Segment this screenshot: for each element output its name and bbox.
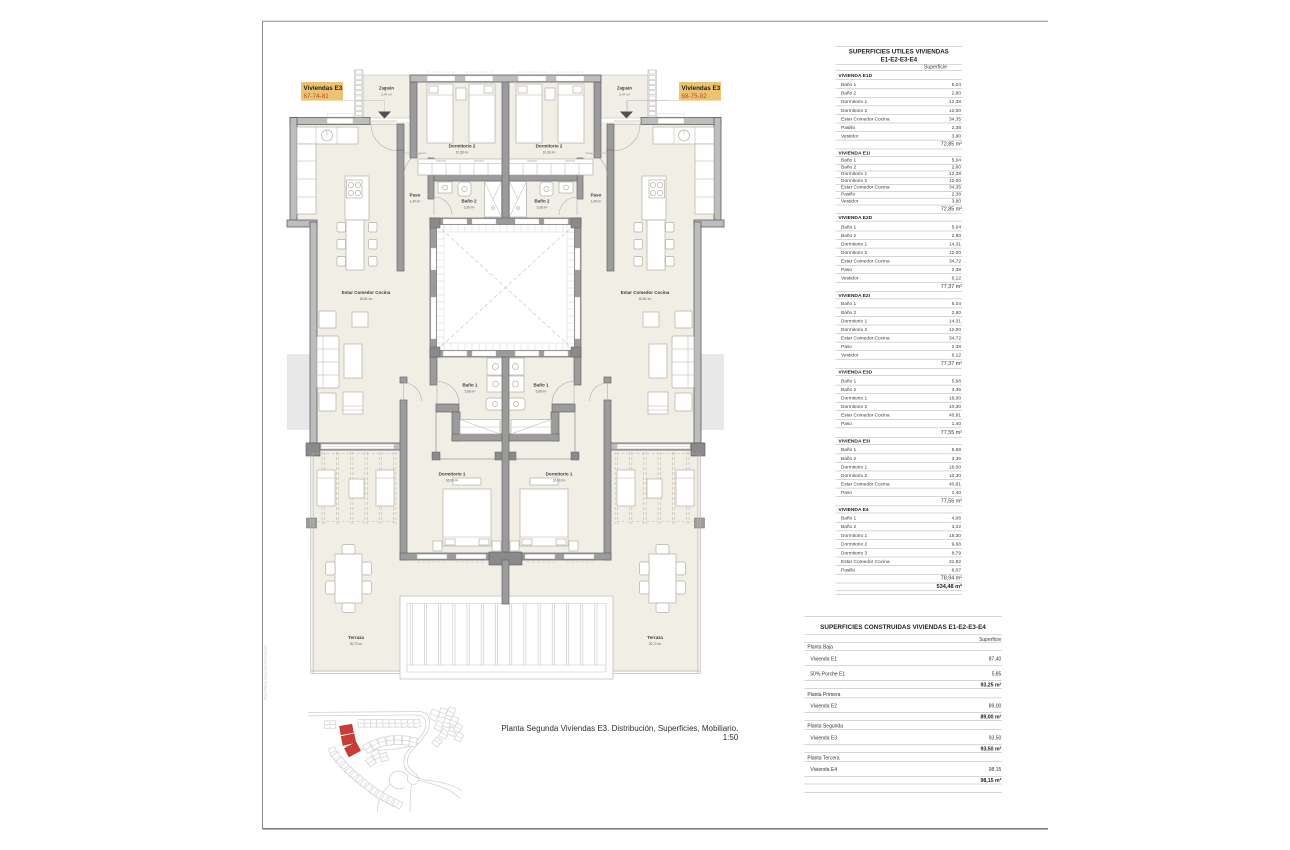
svg-text:Baño 1: Baño 1 [841, 447, 857, 453]
svg-text:2,38: 2,38 [952, 344, 962, 350]
svg-text:Planta Baja: Planta Baja [807, 644, 833, 650]
svg-text:Terraza: Terraza [647, 635, 663, 640]
svg-text:40,81: 40,81 [949, 481, 961, 487]
svg-text:1:50: 1:50 [723, 733, 739, 742]
svg-text:2,47 m²: 2,47 m² [381, 93, 392, 97]
svg-text:16,00 m²: 16,00 m² [446, 479, 459, 483]
svg-text:VIVIENDA E1D: VIVIENDA E1D [838, 73, 872, 79]
svg-text:Baño 1: Baño 1 [841, 301, 857, 307]
svg-text:Estar Comedor Cocina: Estar Comedor Cocina [621, 290, 670, 295]
svg-text:3,22: 3,22 [952, 524, 962, 530]
svg-text:Dormitorio 1: Dormitorio 1 [841, 171, 867, 177]
svg-text:VIVIENDA E2D: VIVIENDA E2D [838, 215, 872, 221]
svg-text:2,80: 2,80 [952, 233, 962, 239]
svg-text:93,25 m²: 93,25 m² [981, 682, 1002, 688]
svg-text:40,81: 40,81 [949, 413, 961, 419]
svg-text:Baño 1: Baño 1 [841, 378, 857, 384]
svg-text:Baño 2: Baño 2 [841, 456, 857, 462]
svg-text:3,36 m²: 3,36 m² [464, 206, 475, 210]
svg-text:Paso: Paso [410, 193, 421, 198]
svg-text:93,50 m²: 93,50 m² [981, 746, 1002, 752]
svg-text:SUPERFICIES CONSTRUIDAS VIVIEN: SUPERFICIES CONSTRUIDAS VIVIENDAS E1-E2-… [820, 624, 986, 631]
svg-text:Baño 1: Baño 1 [841, 82, 857, 88]
svg-text:Baño 2: Baño 2 [841, 387, 857, 393]
svg-text:89,00: 89,00 [989, 703, 1002, 709]
svg-text:72,85 m²: 72,85 m² [941, 142, 962, 148]
svg-text:4,06: 4,06 [952, 516, 962, 522]
svg-text:10,30: 10,30 [949, 404, 961, 410]
svg-text:Planta Tercera: Planta Tercera [807, 755, 839, 761]
svg-text:Plano Planta Segunda Viviendas: Plano Planta Segunda Viviendas E3 [264, 645, 268, 700]
svg-text:1,40: 1,40 [952, 421, 962, 427]
svg-text:Dormitorio 2: Dormitorio 2 [536, 144, 563, 149]
svg-text:Dormitorio 2: Dormitorio 2 [841, 250, 867, 256]
svg-text:87,40: 87,40 [989, 657, 1002, 663]
svg-text:14,31: 14,31 [949, 318, 961, 324]
svg-text:Baño 1: Baño 1 [533, 383, 549, 388]
svg-text:34,35: 34,35 [949, 116, 961, 122]
svg-text:E1-E2-E3-E4: E1-E2-E3-E4 [881, 56, 918, 63]
svg-text:14,31: 14,31 [949, 241, 961, 247]
svg-text:6,12: 6,12 [952, 276, 962, 282]
svg-text:2,47 m²: 2,47 m² [619, 93, 630, 97]
svg-text:Terraza: Terraza [348, 635, 364, 640]
svg-text:5,04: 5,04 [952, 224, 962, 230]
svg-text:Baño 2: Baño 2 [841, 91, 857, 97]
svg-text:72,85 m²: 72,85 m² [941, 207, 962, 213]
svg-text:Vivienda E2: Vivienda E2 [810, 703, 837, 709]
svg-text:5,85: 5,85 [992, 672, 1002, 678]
svg-text:Dormitorio 1: Dormitorio 1 [546, 472, 573, 477]
svg-text:2,38: 2,38 [952, 125, 962, 131]
svg-text:Baño 2: Baño 2 [841, 524, 857, 530]
svg-text:Vestidor: Vestidor [841, 133, 859, 139]
svg-text:SUPERFICIES UTILES VIVIENDAS: SUPERFICIES UTILES VIVIENDAS [849, 48, 949, 55]
svg-text:3,90: 3,90 [952, 133, 962, 139]
svg-text:Pasillo: Pasillo [841, 125, 855, 131]
svg-text:34,35: 34,35 [949, 185, 961, 191]
svg-text:VIVIENDA E4: VIVIENDA E4 [838, 507, 869, 513]
svg-text:Paso: Paso [841, 421, 852, 427]
svg-text:2,80: 2,80 [952, 310, 962, 316]
svg-text:5,68: 5,68 [952, 447, 962, 453]
svg-text:Estar Comedor Cocina: Estar Comedor Cocina [841, 559, 890, 565]
svg-text:5,04: 5,04 [952, 158, 962, 164]
svg-text:Dormitorio 2: Dormitorio 2 [841, 473, 867, 479]
svg-text:77,55 m²: 77,55 m² [941, 430, 962, 436]
svg-text:Paso: Paso [841, 344, 852, 350]
svg-text:10,30: 10,30 [949, 473, 961, 479]
svg-text:12,00: 12,00 [949, 250, 961, 256]
svg-text:VIVIENDA E3D: VIVIENDA E3D [838, 369, 872, 375]
svg-text:40,81 m²: 40,81 m² [639, 297, 652, 301]
svg-text:40,81 m²: 40,81 m² [360, 297, 373, 301]
svg-text:Dormitorio 2: Dormitorio 2 [841, 404, 867, 410]
svg-text:2,38: 2,38 [952, 267, 962, 273]
svg-text:10,38 m²: 10,38 m² [456, 151, 469, 155]
svg-text:Estar Comedor Cocina: Estar Comedor Cocina [841, 259, 890, 265]
svg-text:5,04: 5,04 [952, 301, 962, 307]
svg-text:VIVIENDA E1I: VIVIENDA E1I [838, 150, 870, 156]
svg-text:Baño 1: Baño 1 [462, 383, 478, 388]
svg-text:Planta Primera: Planta Primera [807, 692, 840, 698]
svg-text:12,00: 12,00 [949, 178, 961, 184]
svg-text:Pasillo: Pasillo [841, 568, 855, 574]
svg-text:3,36: 3,36 [952, 456, 962, 462]
svg-text:Planta Segunda Viviendas E3. D: Planta Segunda Viviendas E3. Distribució… [501, 724, 738, 733]
svg-text:20,72 m²: 20,72 m² [649, 642, 662, 646]
svg-text:Viviendas E3: Viviendas E3 [304, 85, 343, 92]
svg-text:Paso: Paso [591, 193, 602, 198]
svg-text:VIVIENDA E2I: VIVIENDA E2I [838, 293, 870, 299]
svg-text:Baño 2: Baño 2 [534, 199, 550, 204]
svg-text:Vestidor: Vestidor [841, 353, 859, 359]
svg-text:12,38: 12,38 [949, 171, 961, 177]
svg-text:Zaguán: Zaguán [379, 86, 394, 91]
svg-text:20,72 m²: 20,72 m² [350, 642, 363, 646]
svg-text:Dormitorio 3: Dormitorio 3 [841, 550, 867, 556]
svg-text:12,00: 12,00 [949, 327, 961, 333]
svg-text:Pasillo: Pasillo [841, 192, 855, 198]
svg-text:Baño 1: Baño 1 [841, 516, 857, 522]
svg-text:1,40 m²: 1,40 m² [410, 200, 421, 204]
svg-text:2,38: 2,38 [952, 192, 962, 198]
svg-text:Estar Comedor Cocina: Estar Comedor Cocina [841, 413, 890, 419]
svg-text:Baño 2: Baño 2 [841, 233, 857, 239]
svg-text:2,80: 2,80 [952, 91, 962, 97]
svg-text:77,37 m²: 77,37 m² [941, 284, 962, 290]
svg-text:12,38: 12,38 [949, 99, 961, 105]
svg-text:5,68 m²: 5,68 m² [536, 390, 547, 394]
svg-text:Dormitorio 2: Dormitorio 2 [841, 108, 867, 114]
svg-text:Dormitorio 1: Dormitorio 1 [841, 533, 867, 539]
svg-text:6,07: 6,07 [952, 568, 962, 574]
svg-text:5,68 m²: 5,68 m² [465, 390, 476, 394]
svg-text:89,00 m²: 89,00 m² [981, 715, 1002, 721]
svg-text:Estar Comedor Cocina: Estar Comedor Cocina [342, 290, 391, 295]
svg-text:Dormitorio 2: Dormitorio 2 [841, 542, 867, 548]
svg-text:8,79: 8,79 [952, 550, 962, 556]
svg-text:78,94 m²: 78,94 m² [941, 576, 962, 582]
svg-text:77,37 m²: 77,37 m² [941, 361, 962, 367]
svg-text:Paso: Paso [841, 267, 852, 273]
svg-text:Dormitorio 2: Dormitorio 2 [841, 178, 867, 184]
svg-text:Dormitorio 1: Dormitorio 1 [439, 472, 466, 477]
svg-text:Dormitorio 1: Dormitorio 1 [841, 99, 867, 105]
svg-text:Dormitorio 1: Dormitorio 1 [841, 241, 867, 247]
svg-text:77,55 m²: 77,55 m² [941, 499, 962, 505]
svg-text:Estar Comedor Cocina: Estar Comedor Cocina [841, 335, 890, 341]
svg-text:VIVIENDA E3I: VIVIENDA E3I [838, 439, 870, 445]
svg-text:Superficie: Superficie [979, 637, 1001, 643]
svg-text:Vestidor: Vestidor [841, 198, 859, 204]
svg-text:10,30 m²: 10,30 m² [543, 151, 556, 155]
svg-text:1,40: 1,40 [952, 490, 962, 496]
svg-text:12,00: 12,00 [949, 108, 961, 114]
svg-text:Dormitorio 2: Dormitorio 2 [841, 327, 867, 333]
svg-text:Baño 2: Baño 2 [841, 164, 857, 170]
svg-text:Vivienda E1: Vivienda E1 [810, 657, 837, 663]
svg-text:Vivienda E4: Vivienda E4 [810, 767, 837, 773]
svg-text:93,50: 93,50 [989, 735, 1002, 741]
svg-text:34,72: 34,72 [949, 259, 961, 265]
svg-text:Paso: Paso [841, 490, 852, 496]
svg-text:Zaguán: Zaguán [617, 86, 632, 91]
svg-text:6,12: 6,12 [952, 353, 962, 359]
svg-text:15,30: 15,30 [949, 533, 961, 539]
svg-text:16,00: 16,00 [949, 464, 961, 470]
svg-text:50% Porche E1: 50% Porche E1 [810, 672, 845, 678]
svg-text:Planta Segunda: Planta Segunda [807, 724, 843, 730]
svg-text:68-75-82: 68-75-82 [682, 93, 708, 100]
svg-text:67-74-81: 67-74-81 [304, 93, 330, 100]
svg-text:Baño 2: Baño 2 [461, 199, 477, 204]
svg-text:Estar Comedor Cocina: Estar Comedor Cocina [841, 116, 890, 122]
svg-text:Estar Comedor Cocina: Estar Comedor Cocina [841, 185, 890, 191]
svg-text:Vivienda E3: Vivienda E3 [810, 735, 837, 741]
svg-text:5,04: 5,04 [952, 82, 962, 88]
svg-text:34,72: 34,72 [949, 335, 961, 341]
svg-text:16,00: 16,00 [949, 396, 961, 402]
svg-text:Baño 1: Baño 1 [841, 158, 857, 164]
svg-text:Viviendas E3: Viviendas E3 [682, 85, 721, 92]
svg-text:Dormitorio 1: Dormitorio 1 [841, 318, 867, 324]
svg-text:534,48 m²: 534,48 m² [937, 583, 963, 590]
svg-text:9,68: 9,68 [952, 542, 962, 548]
svg-text:Superficie: Superficie [924, 64, 947, 70]
svg-text:Dormitorio 1: Dormitorio 1 [841, 464, 867, 470]
svg-text:2,80: 2,80 [952, 164, 962, 170]
svg-text:Dormitorio 1: Dormitorio 1 [841, 396, 867, 402]
svg-text:Baño 1: Baño 1 [841, 224, 857, 230]
svg-text:16,00 m²: 16,00 m² [553, 479, 566, 483]
svg-text:Vestidor: Vestidor [841, 276, 859, 282]
svg-text:98,15 m²: 98,15 m² [981, 778, 1002, 784]
svg-text:3,90: 3,90 [952, 198, 962, 204]
svg-text:3,36 m²: 3,36 m² [537, 206, 548, 210]
svg-text:Dormitorio 2: Dormitorio 2 [449, 144, 476, 149]
svg-text:1,40 m²: 1,40 m² [591, 200, 602, 204]
svg-text:5,68: 5,68 [952, 378, 962, 384]
svg-text:Baño 2: Baño 2 [841, 310, 857, 316]
svg-text:3,36: 3,36 [952, 387, 962, 393]
svg-text:Estar Comedor Cocina: Estar Comedor Cocina [841, 481, 890, 487]
svg-text:31,82: 31,82 [949, 559, 961, 565]
svg-text:98,15: 98,15 [989, 767, 1002, 773]
